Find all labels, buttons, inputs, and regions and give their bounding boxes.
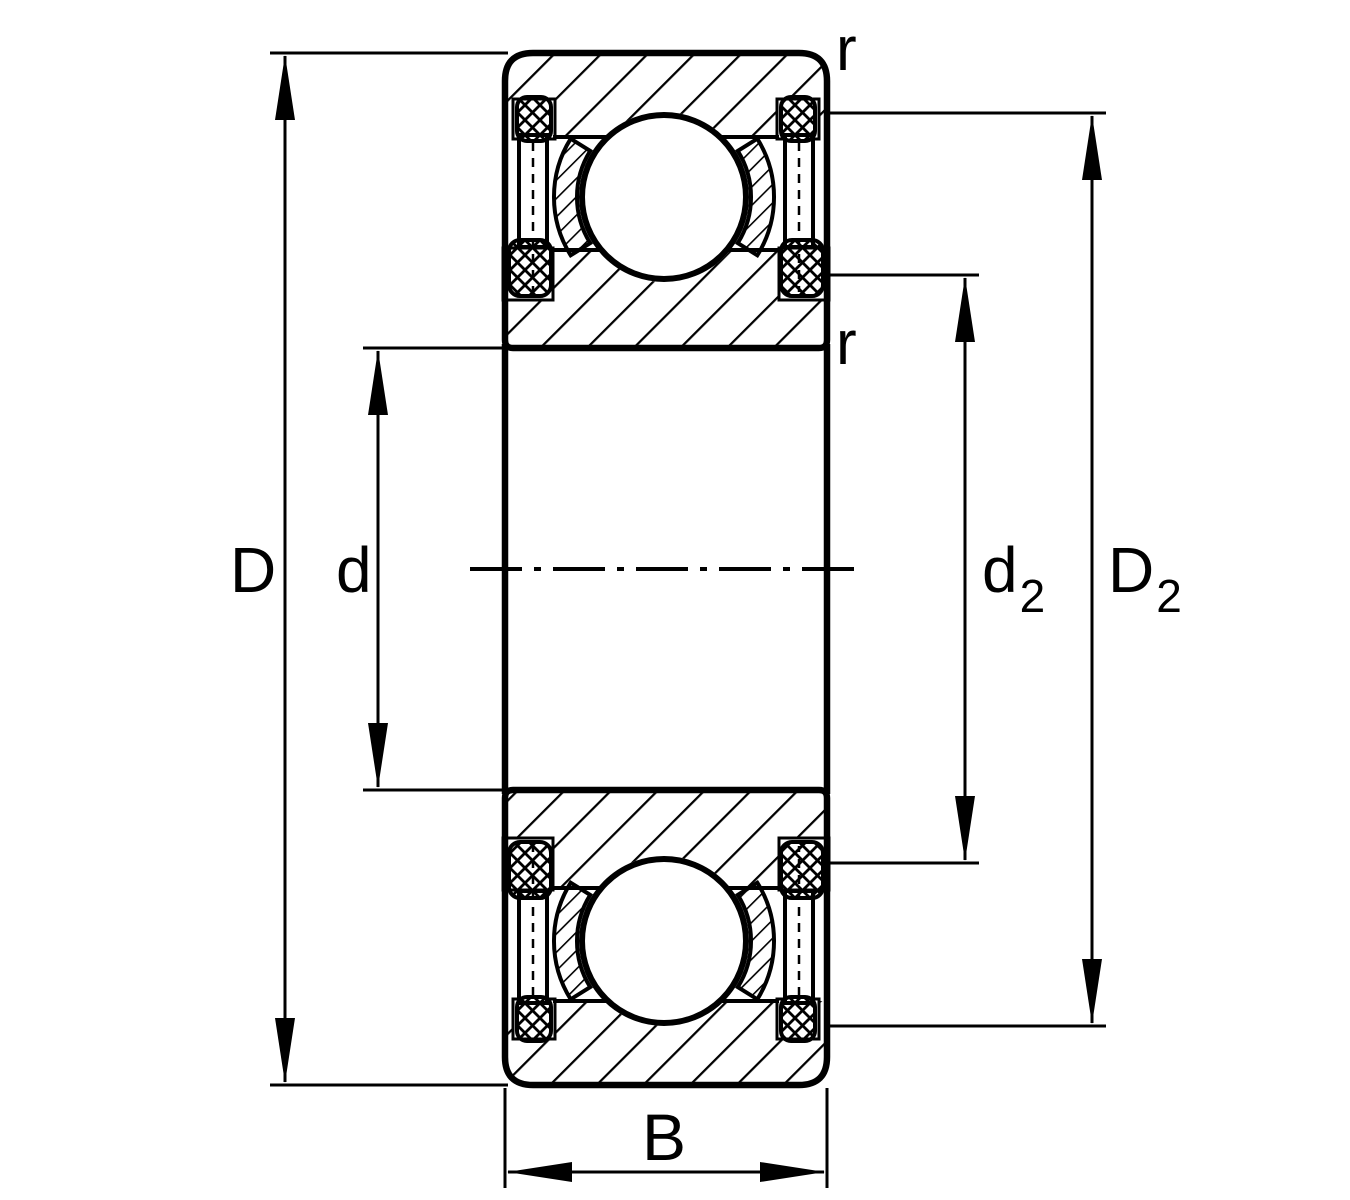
label-D2-sub: 2	[1156, 570, 1182, 622]
label-d: d	[336, 534, 372, 606]
label-B: B	[642, 1100, 686, 1174]
label-d2-main: d	[982, 534, 1018, 606]
seal-lip-rubber	[781, 240, 823, 296]
label-d2-sub: 2	[1020, 570, 1046, 622]
label-D: D	[230, 534, 276, 606]
label-D2-main: D	[1108, 534, 1154, 606]
seal-anchor-rubber	[781, 97, 815, 141]
bearing-drawing-canvas: D d d2 D2 B r r	[0, 0, 1350, 1200]
bearing-cross-section-drawing: D d d2 D2 B r r	[0, 0, 1350, 1200]
label-r-inner: r	[836, 309, 857, 378]
label-r-outer: r	[836, 15, 857, 84]
seal-anchor-rubber	[517, 97, 551, 141]
seal-lip-rubber	[509, 240, 551, 296]
ball	[582, 115, 746, 279]
